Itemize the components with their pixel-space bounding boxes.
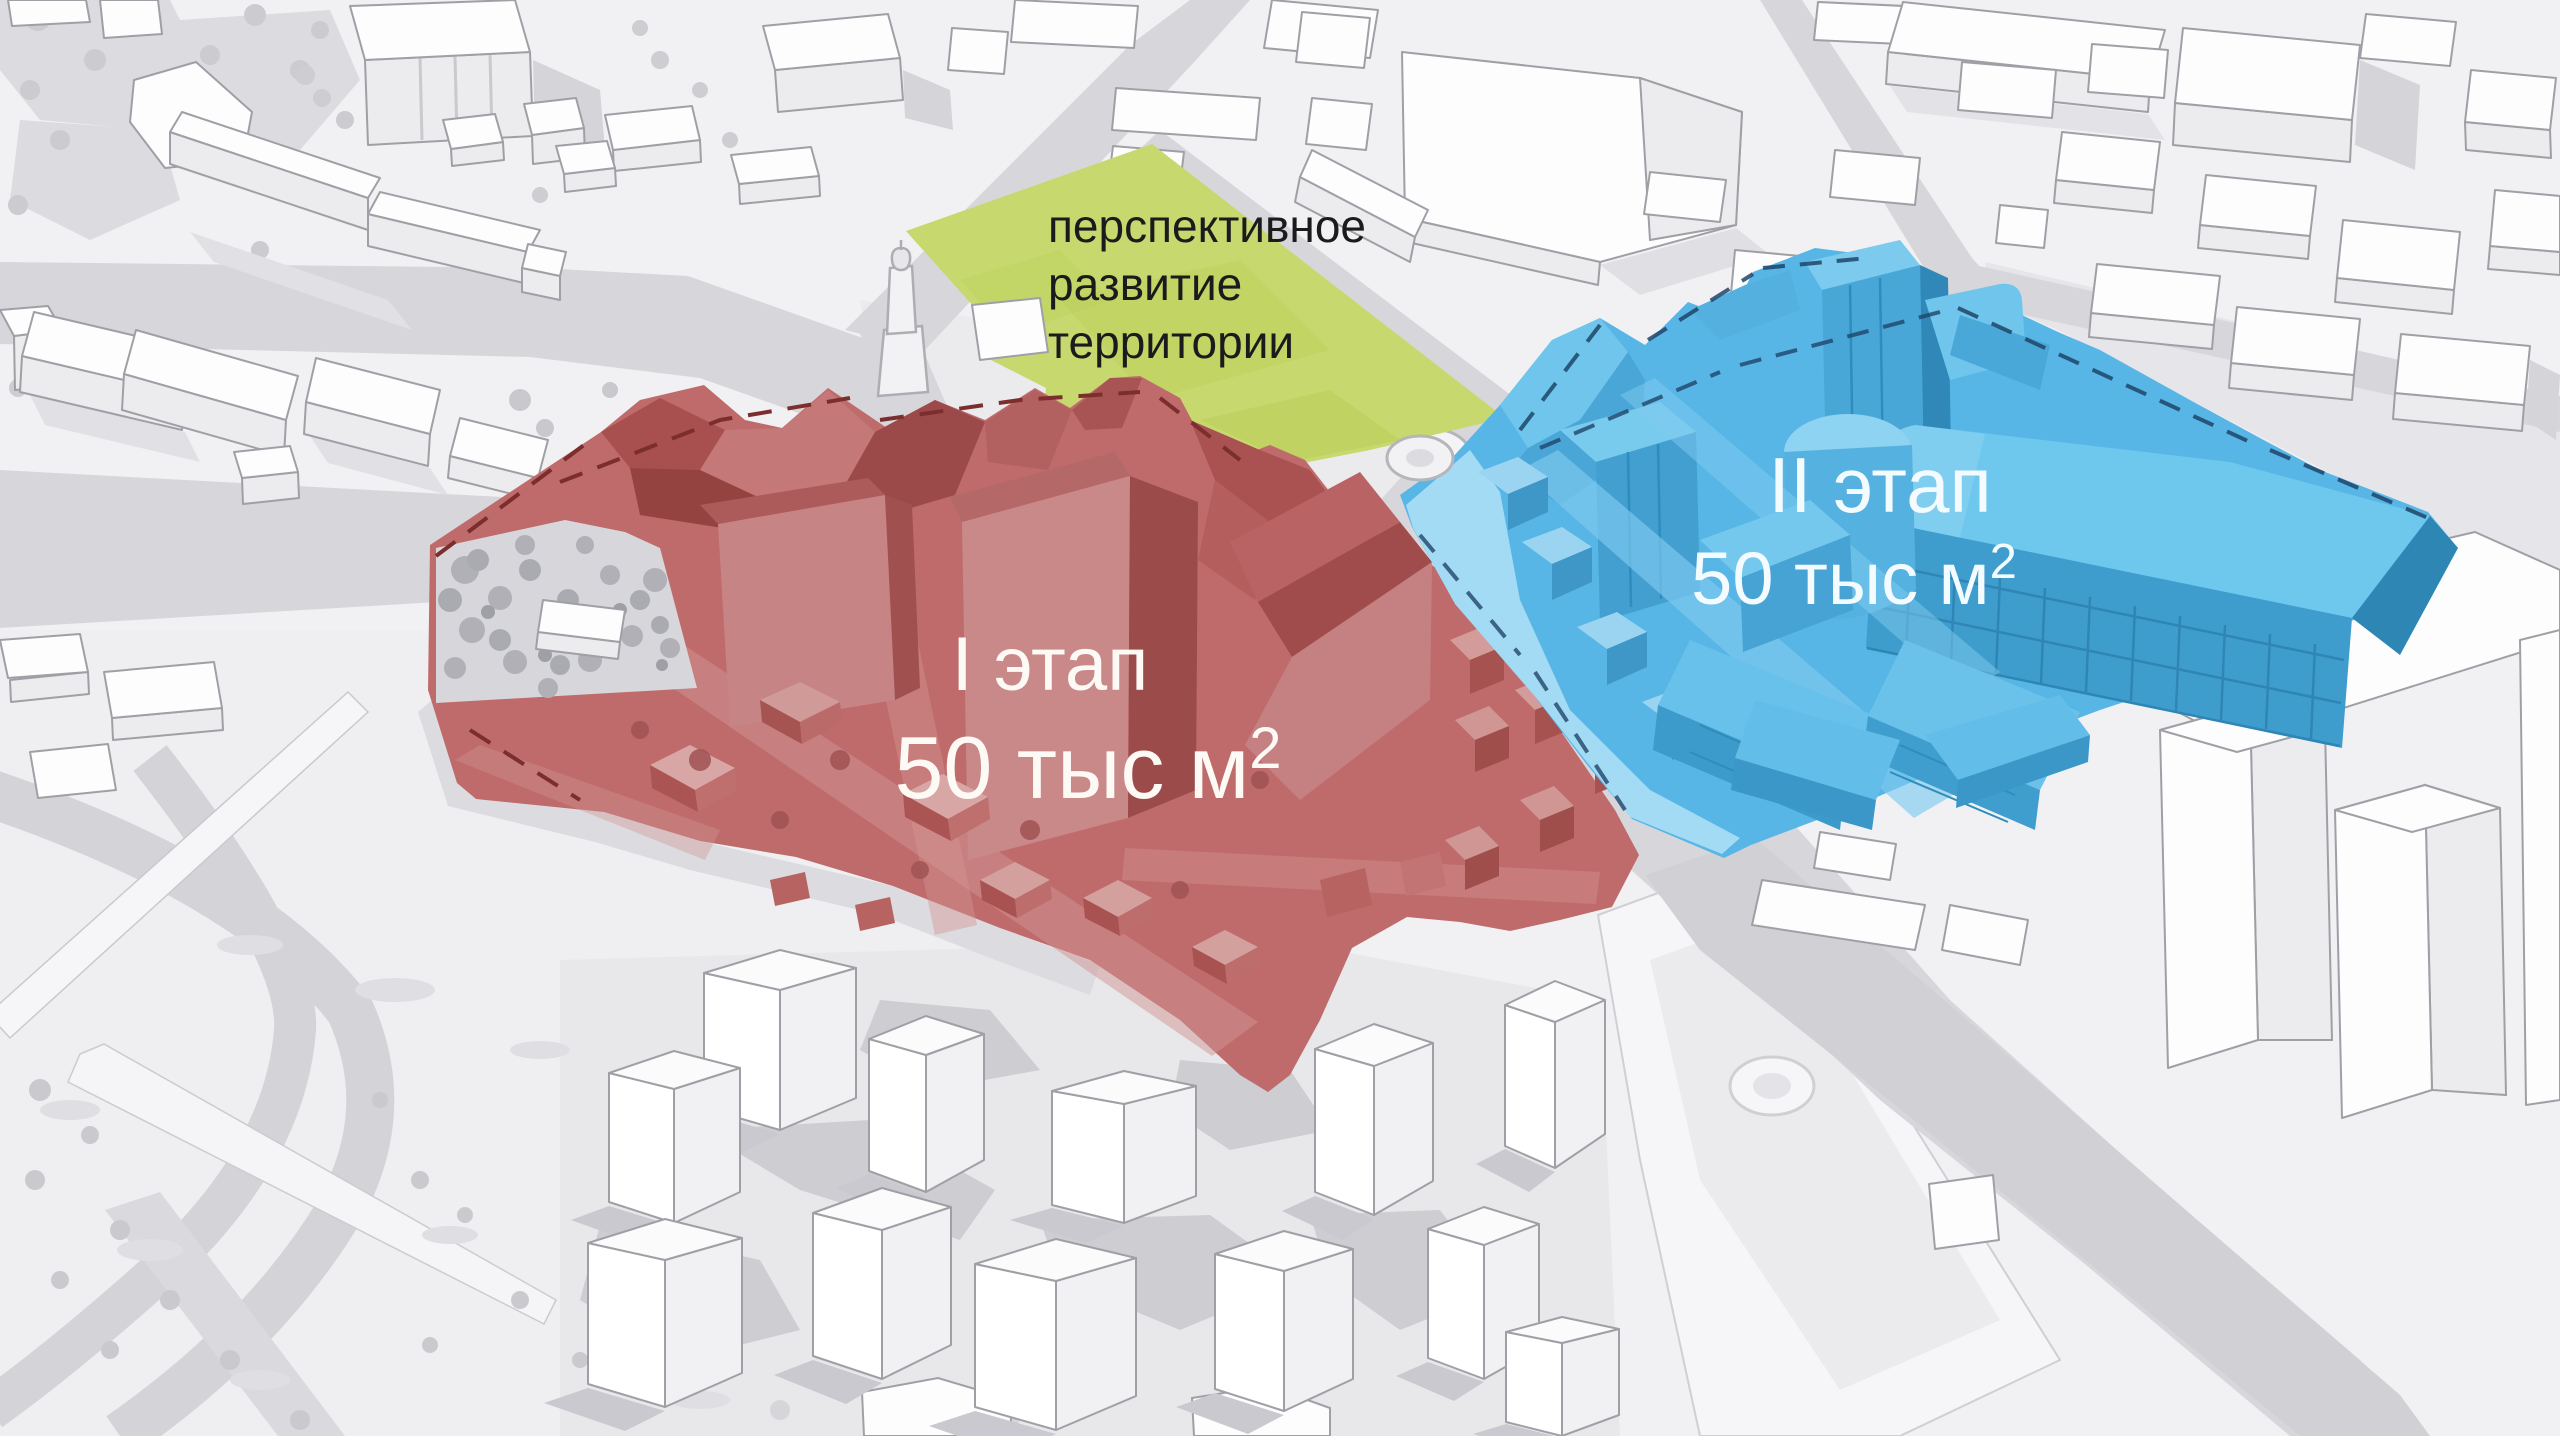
svg-text:II этап: II этап — [1768, 441, 1992, 529]
svg-text:перспективное: перспективное — [1048, 200, 1366, 252]
svg-text:развитие: развитие — [1048, 258, 1242, 310]
svg-text:50 тыс м2: 50 тыс м2 — [894, 716, 1281, 817]
svg-text:50 тыс м2: 50 тыс м2 — [1691, 535, 2017, 620]
svg-text:территории: территории — [1048, 316, 1294, 368]
svg-text:I этап: I этап — [952, 622, 1149, 707]
